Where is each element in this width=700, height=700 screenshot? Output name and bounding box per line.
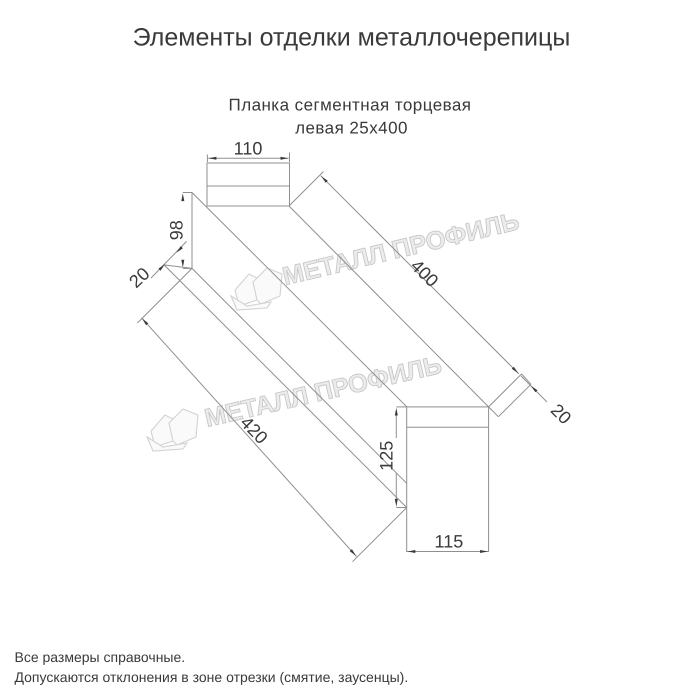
svg-text:125: 125 (377, 441, 397, 471)
svg-text:левая 25х400: левая 25х400 (295, 119, 408, 138)
svg-text:Планка сегментная торцевая: Планка сегментная торцевая (229, 96, 472, 115)
svg-text:110: 110 (234, 139, 263, 159)
svg-text:Допускаются отклонения в зоне: Допускаются отклонения в зоне отрезки (с… (15, 669, 409, 685)
svg-text:115: 115 (435, 532, 464, 552)
svg-text:98: 98 (167, 220, 187, 240)
svg-text:Элементы отделки металлочерепи: Элементы отделки металлочерепицы (133, 24, 571, 52)
svg-text:Все размеры справочные.: Все размеры справочные. (15, 649, 186, 665)
